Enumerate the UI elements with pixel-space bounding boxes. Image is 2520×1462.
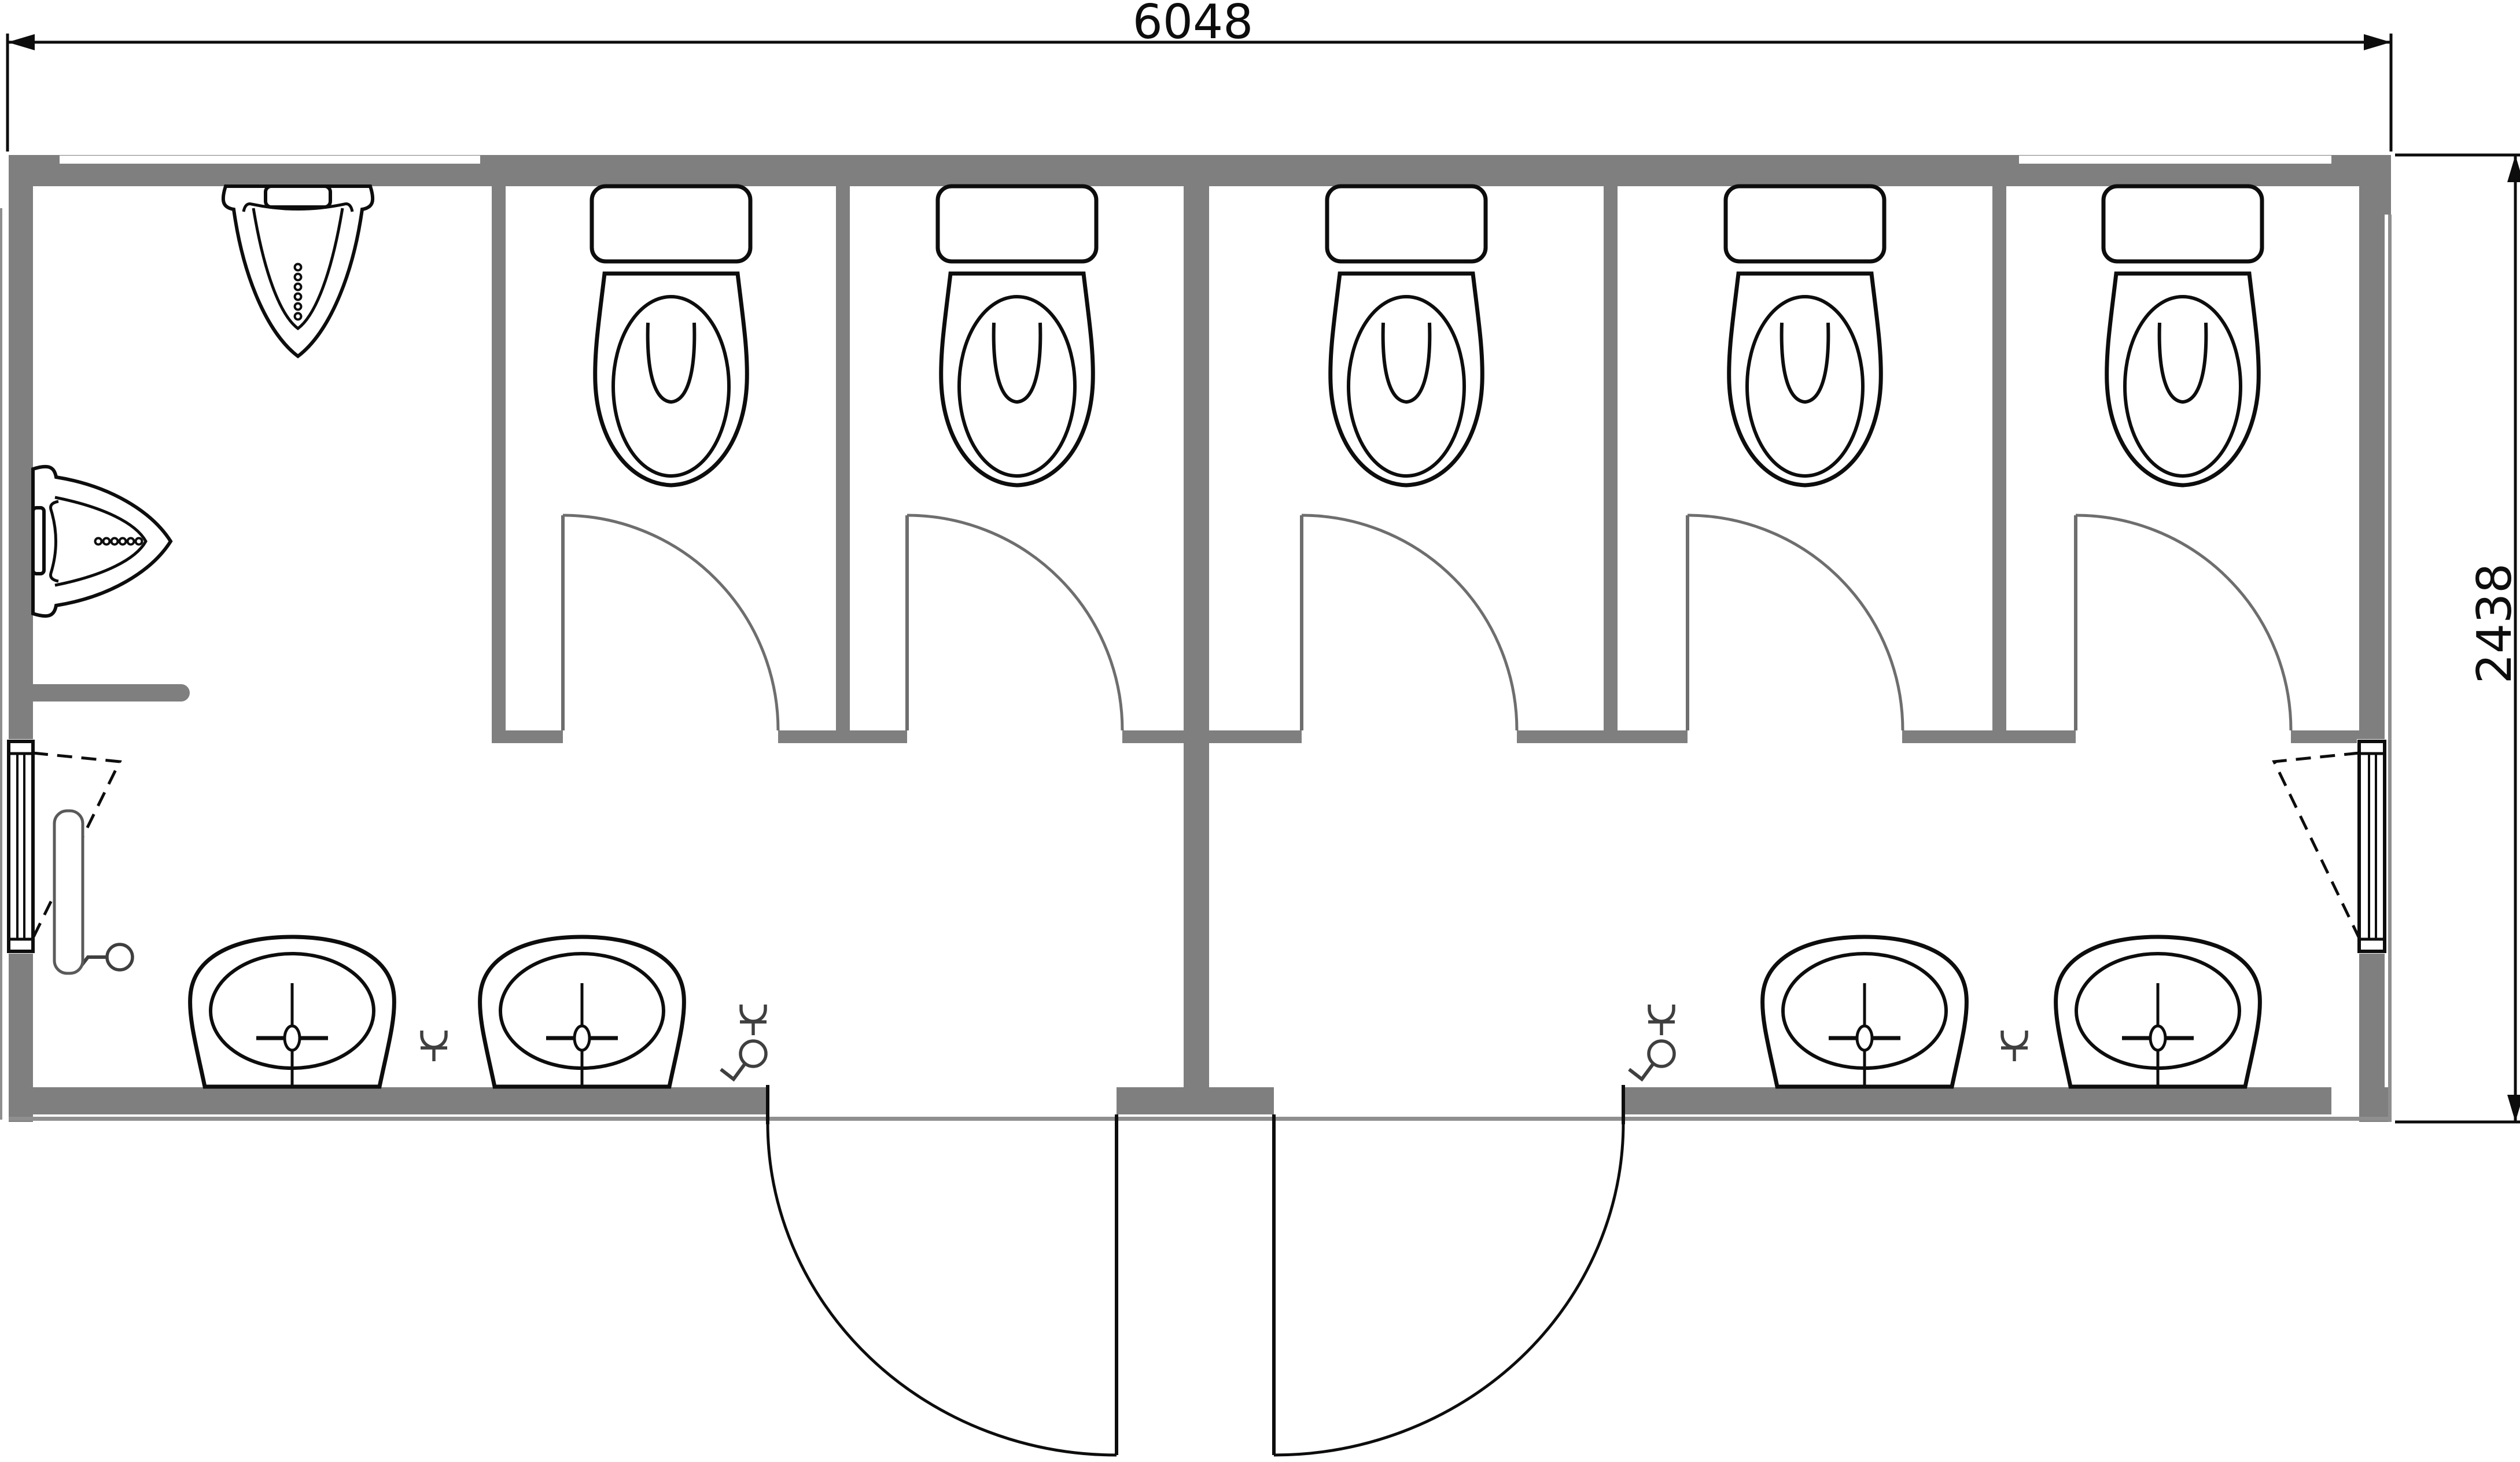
toilet-5	[2103, 186, 2262, 485]
wc-stall-door-swing-5	[2076, 515, 2291, 730]
bottom-wall-right	[1623, 1087, 2331, 1114]
urinal-flush	[266, 186, 330, 207]
left-outer-skin-line	[0, 208, 2, 1120]
urinal-left-wall	[33, 467, 171, 616]
sink-4	[2056, 937, 2260, 1087]
toilet-3	[1327, 186, 1486, 485]
center-dividing-wall	[1184, 185, 1209, 1087]
partition-urinal-stall1	[492, 185, 506, 743]
toilet-4	[1726, 186, 1884, 485]
tap-circle	[740, 1041, 766, 1066]
toilet-bowl	[1331, 274, 1483, 485]
wc-stall-door-swing-1	[563, 515, 778, 730]
stall-front-wall	[2291, 730, 2359, 743]
toilet-tank	[1327, 186, 1486, 261]
floor-plan-drawing: 6048 2438	[0, 0, 2520, 1462]
entrance-door-left-swing	[768, 1123, 1117, 1455]
stall-front-wall	[506, 730, 563, 743]
tap-circle	[1649, 1041, 1674, 1066]
urinal-top-wall	[223, 186, 373, 356]
drain-symbol	[1648, 1005, 1675, 1035]
right-outer-skin-line	[2388, 215, 2392, 1122]
sink-tap-head	[2150, 1026, 2165, 1050]
arrow-right-icon	[2364, 34, 2391, 50]
sink-tap-head	[1857, 1026, 1872, 1050]
top-wall-seam-left	[60, 156, 480, 164]
entrance-center-pier	[1117, 1087, 1274, 1114]
toilet-2	[938, 186, 1096, 485]
drain-cup	[741, 1005, 765, 1021]
partition-stall4-stall5	[1992, 185, 2006, 743]
toilet-bowl	[941, 274, 1093, 485]
radiator	[54, 811, 83, 973]
stall-front-wall	[1517, 730, 1604, 743]
doors	[563, 515, 2291, 1455]
stall-front-wall	[1209, 730, 1302, 743]
height-dimension-label: 2438	[2467, 563, 2520, 684]
bottom-outer-skin-line	[9, 1117, 2391, 1121]
window-right-frame	[2359, 741, 2385, 951]
stall-front-wall	[1902, 730, 1992, 743]
drain-symbol	[2001, 1031, 2028, 1061]
window-right-casement-dashed	[2274, 753, 2359, 937]
wc-stall-door-swing-4	[1688, 515, 1903, 730]
window-left-frame	[9, 741, 33, 951]
fixtures	[33, 186, 2262, 1087]
arrow-left-icon	[8, 34, 35, 50]
urinal-flush	[33, 508, 44, 574]
stall-front-wall	[1122, 730, 1184, 743]
tap-circle	[107, 944, 132, 970]
urinal-privacy-screen	[33, 684, 190, 702]
left-wall	[9, 155, 33, 1122]
drain-cup	[2002, 1031, 2027, 1047]
drain-symbol	[740, 1005, 767, 1035]
tap-handle	[1629, 1064, 1653, 1079]
entrance-door-right-swing	[1274, 1123, 1623, 1455]
drain-symbol	[421, 1031, 447, 1061]
toilet-bowl	[1729, 274, 1881, 485]
right-wall	[2359, 155, 2385, 1122]
toilet-tank	[1726, 186, 1884, 261]
sink-1	[190, 937, 395, 1087]
floor-plan-page: 6048 2438	[0, 0, 2520, 1462]
toilet-tank	[592, 186, 750, 261]
sink-tap-head	[285, 1026, 300, 1050]
arrow-down-icon	[2507, 1095, 2520, 1122]
tap-handle	[721, 1064, 745, 1079]
tap-symbol-wall	[80, 944, 132, 970]
sink-tap-head	[574, 1026, 590, 1050]
tap-symbol	[721, 1041, 766, 1079]
partition-stall3-stall4	[1604, 185, 1618, 743]
toilet-bowl	[2107, 274, 2259, 485]
partition-stall1-stall2	[836, 185, 850, 743]
arrow-up-icon	[2507, 155, 2520, 182]
toilet-bowl	[595, 274, 747, 485]
tap-symbol	[1629, 1041, 1674, 1079]
sink-3	[1763, 937, 1967, 1087]
stall-front-wall	[850, 730, 907, 743]
stall-front-wall	[1618, 730, 1688, 743]
bottom-wall-left	[9, 1087, 768, 1114]
stall-front-wall	[2006, 730, 2076, 743]
right-corner-post	[2385, 155, 2391, 215]
toilet-1	[592, 186, 750, 485]
toilet-tank	[2103, 186, 2262, 261]
wc-stall-door-swing-2	[907, 515, 1122, 730]
top-wall-seam-right	[2019, 156, 2331, 164]
wc-stall-door-swing-3	[1302, 515, 1517, 730]
stall-front-wall	[778, 730, 836, 743]
sink-2	[480, 937, 684, 1087]
drain-cup	[422, 1031, 446, 1047]
drain-cup	[1649, 1005, 1674, 1021]
toilet-tank	[938, 186, 1096, 261]
